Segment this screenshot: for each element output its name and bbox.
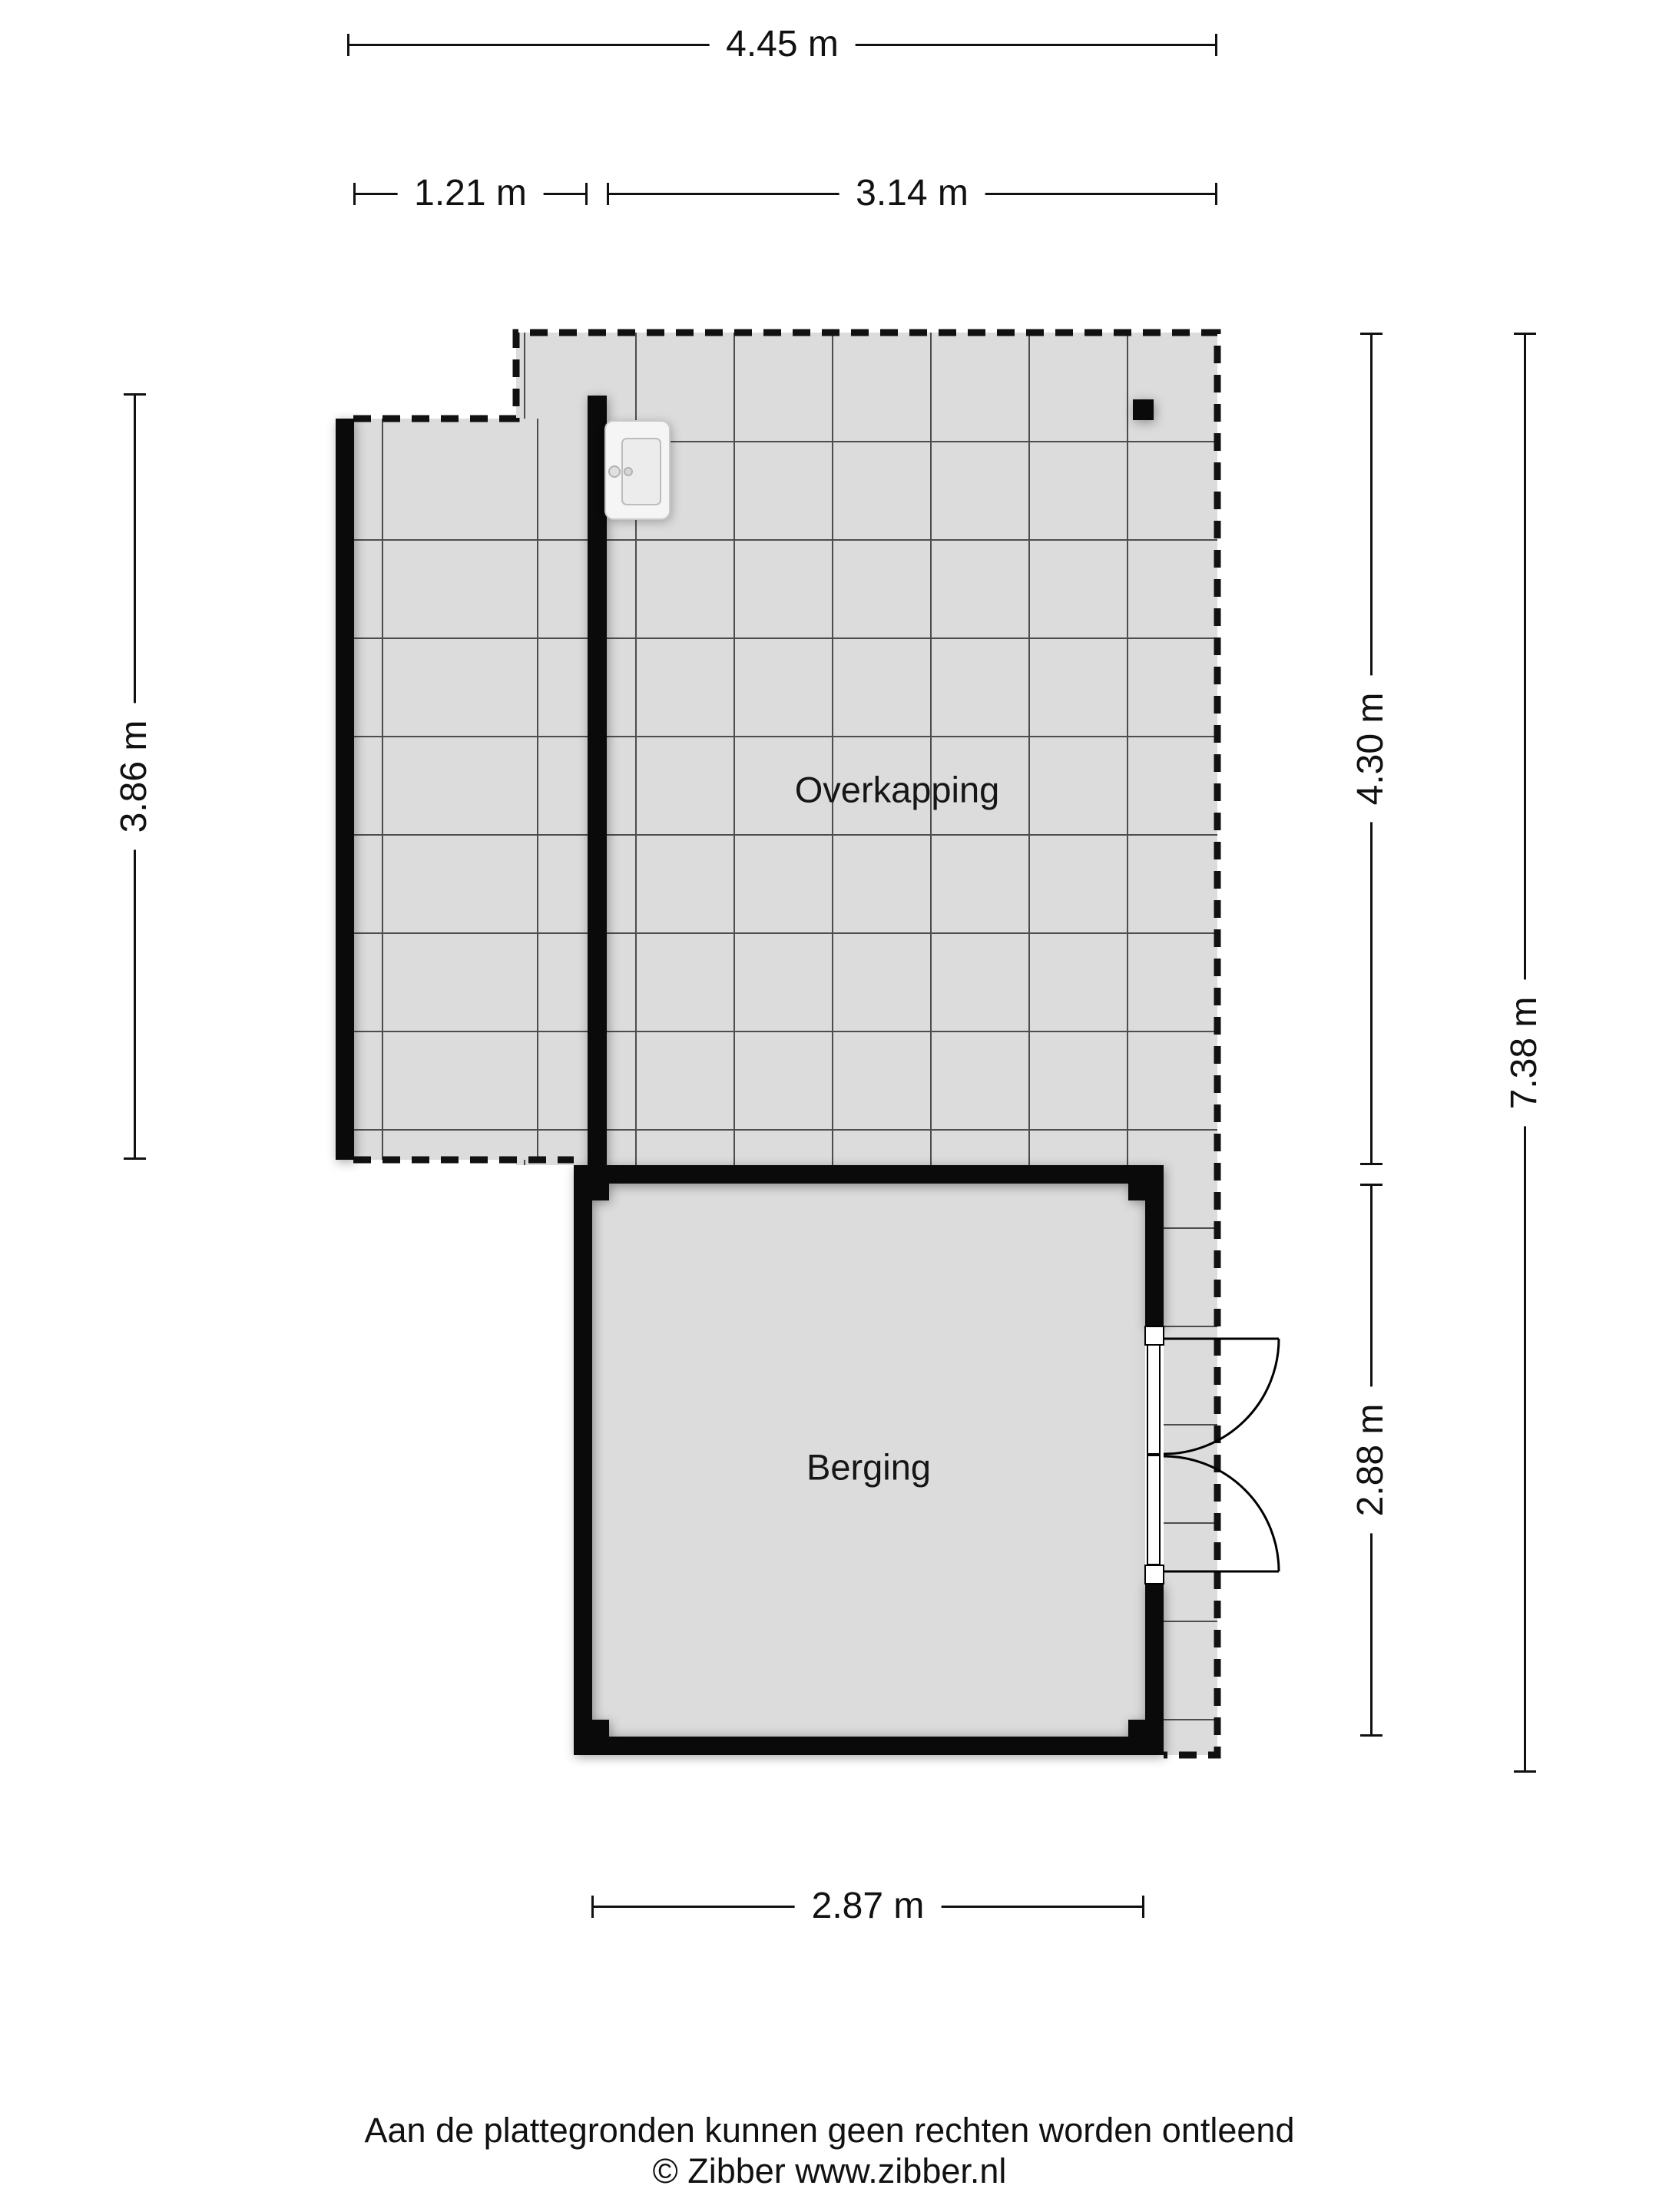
corner-block [592, 1720, 609, 1737]
berging-right-wall-lower [1145, 1584, 1164, 1755]
sink-icon [605, 421, 670, 519]
berging-top-wall [574, 1165, 1164, 1184]
room-label-overkapping: Overkapping [795, 769, 1000, 811]
dimension-label: 2.88 m [1346, 1387, 1396, 1534]
walls [336, 396, 1164, 1755]
berging-bottom-wall [574, 1737, 1164, 1755]
corner-block [592, 1184, 609, 1200]
dimension-label: 4.30 m [1346, 676, 1396, 823]
corner-block [1128, 1720, 1145, 1737]
left-wall [336, 419, 354, 1160]
dimension-label: 2.87 m [795, 1882, 942, 1931]
dimension-label: 3.86 m [110, 704, 159, 850]
dimension-label: 4.45 m [709, 20, 856, 69]
dimension-label: 7.38 m [1500, 979, 1549, 1126]
room-label-berging: Berging [806, 1446, 931, 1488]
footer-copyright: © Zibber www.zibber.nl [0, 2151, 1659, 2191]
berging-right-wall-upper [1145, 1165, 1164, 1326]
plan-drawing [0, 0, 1659, 2212]
double-door-icon [1145, 1326, 1279, 1584]
berging-left-wall [574, 1165, 592, 1755]
post-icon [1133, 399, 1154, 420]
corner-block [1128, 1184, 1145, 1200]
dimension-label: 3.14 m [839, 169, 985, 218]
divider-wall [588, 396, 607, 1184]
floorplan-page: 4.45 m 1.21 m 3.14 m 3.86 m 4.30 m 2.88 … [0, 0, 1659, 2212]
footer-disclaimer: Aan de plattegronden kunnen geen rechten… [0, 2111, 1659, 2151]
dimension-label: 1.21 m [397, 169, 544, 218]
canopy-dashed-boundary [353, 333, 1217, 1755]
